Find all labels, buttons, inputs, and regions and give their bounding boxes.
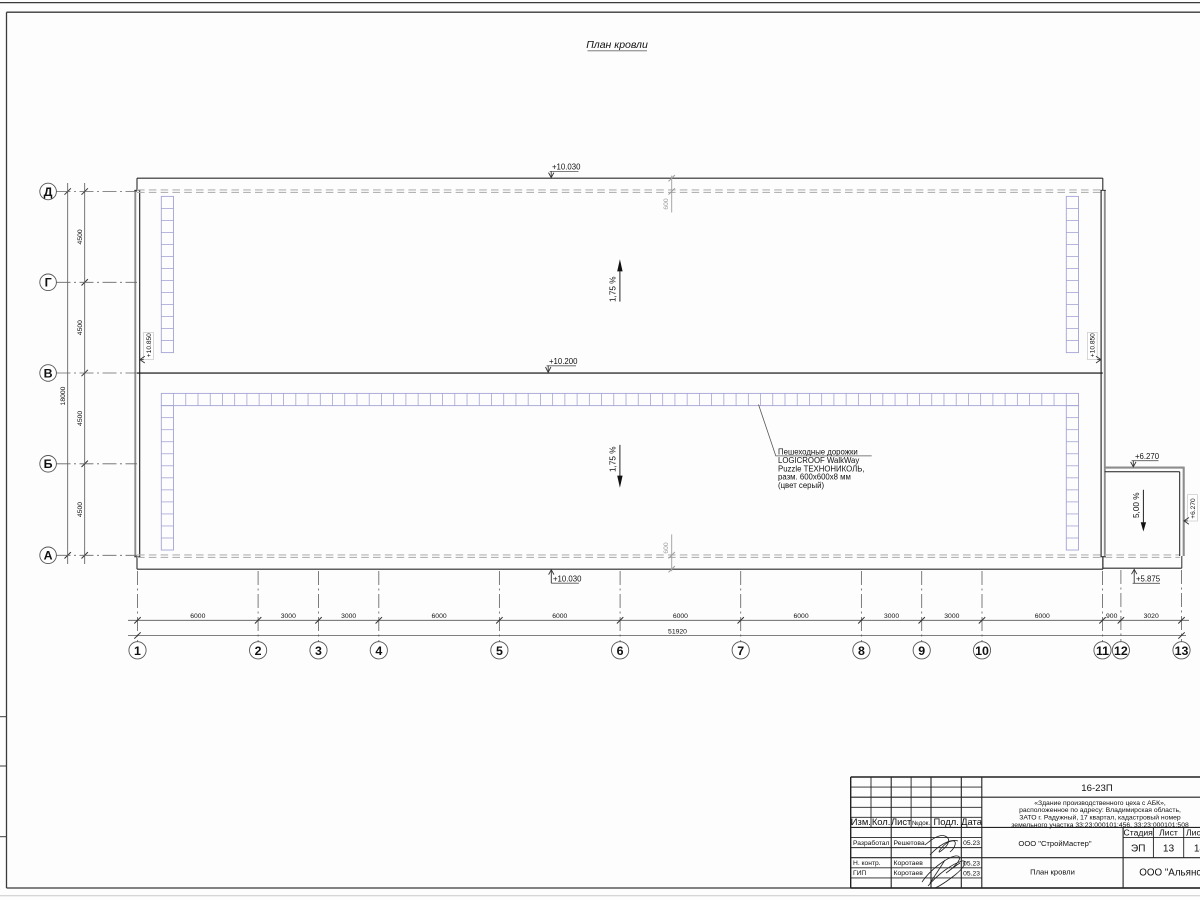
- svg-text:12: 12: [1114, 644, 1128, 658]
- svg-text:ЭП: ЭП: [1131, 844, 1146, 855]
- svg-text:ООО "СтройМастер": ООО "СтройМастер": [1018, 839, 1091, 848]
- svg-text:6000: 6000: [552, 613, 567, 620]
- svg-text:+10.850: +10.850: [146, 333, 153, 357]
- svg-text:+6.270: +6.270: [1190, 498, 1197, 519]
- svg-text:Изм.: Изм.: [851, 816, 871, 827]
- svg-text:«Здание производственного цеха: «Здание производственного цеха с АБК»,: [1034, 800, 1166, 807]
- svg-text:Листов: Листов: [1186, 827, 1200, 837]
- svg-text:Н. контр.: Н. контр.: [853, 860, 881, 867]
- svg-text:13: 13: [1163, 844, 1175, 855]
- svg-text:Г: Г: [45, 276, 52, 290]
- svg-text:3000: 3000: [944, 613, 959, 620]
- svg-text:1,75 %: 1,75 %: [608, 277, 617, 303]
- svg-text:4: 4: [375, 644, 382, 658]
- svg-text:№док.: №док.: [912, 820, 930, 827]
- svg-text:2: 2: [255, 644, 262, 658]
- svg-text:План кровли: План кровли: [586, 39, 648, 51]
- svg-text:9: 9: [918, 644, 925, 658]
- svg-text:5,00 %: 5,00 %: [1132, 493, 1141, 519]
- svg-text:Решетова: Решетова: [894, 840, 925, 847]
- svg-text:16-23П: 16-23П: [1081, 783, 1113, 794]
- svg-text:13: 13: [1175, 644, 1189, 658]
- svg-text:900: 900: [1106, 613, 1118, 620]
- svg-text:Коротаев: Коротаев: [894, 870, 924, 877]
- svg-text:3: 3: [315, 644, 322, 658]
- svg-text:6: 6: [617, 644, 624, 658]
- svg-text:ЗАТО г. Радужный, 17 квартал,: ЗАТО г. Радужный, 17 квартал, кадастровы…: [1019, 814, 1181, 822]
- svg-text:1: 1: [134, 644, 141, 658]
- svg-text:10: 10: [975, 644, 989, 658]
- svg-text:План кровли: План кровли: [1030, 867, 1075, 876]
- svg-text:Д: Д: [44, 185, 53, 199]
- svg-text:Лист: Лист: [891, 816, 912, 827]
- svg-text:ГИП: ГИП: [853, 870, 866, 877]
- svg-text:4500: 4500: [77, 320, 84, 335]
- svg-text:600: 600: [663, 198, 670, 210]
- svg-text:3000: 3000: [884, 613, 899, 620]
- svg-text:расположенное по адресу: Влади: расположенное по адресу: Владимирская об…: [1019, 806, 1181, 814]
- svg-text:14: 14: [1194, 844, 1200, 855]
- svg-text:+6.270: +6.270: [1135, 452, 1160, 461]
- svg-text:4500: 4500: [77, 502, 84, 517]
- svg-text:ООО "Альянс": ООО "Альянс": [1139, 867, 1200, 878]
- svg-text:05.23: 05.23: [963, 860, 980, 867]
- svg-text:6000: 6000: [673, 613, 688, 620]
- svg-text:А: А: [44, 549, 53, 563]
- svg-text:Разработал: Разработал: [853, 839, 889, 847]
- svg-text:05.23: 05.23: [963, 870, 980, 877]
- svg-text:+5.875: +5.875: [1136, 575, 1161, 584]
- svg-text:3000: 3000: [341, 613, 356, 620]
- svg-text:+10.030: +10.030: [552, 163, 581, 172]
- svg-text:Коротаев: Коротаев: [894, 860, 924, 867]
- svg-text:6000: 6000: [190, 613, 205, 620]
- svg-text:6000: 6000: [1035, 613, 1050, 620]
- svg-text:Подл.: Подл.: [934, 816, 959, 827]
- svg-text:Дата: Дата: [961, 816, 983, 827]
- svg-text:05.23: 05.23: [963, 840, 980, 847]
- svg-text:+10.030: +10.030: [553, 574, 582, 583]
- svg-text:6000: 6000: [793, 613, 808, 620]
- svg-text:4500: 4500: [77, 411, 84, 426]
- svg-text:51920: 51920: [668, 628, 687, 635]
- svg-text:11: 11: [1096, 644, 1109, 658]
- svg-text:(цвет серый): (цвет серый): [778, 481, 824, 490]
- svg-text:7: 7: [737, 644, 744, 658]
- svg-text:8: 8: [858, 644, 865, 658]
- svg-text:600: 600: [663, 542, 670, 554]
- svg-text:1,75 %: 1,75 %: [608, 447, 617, 473]
- svg-text:3000: 3000: [281, 613, 296, 620]
- svg-text:3020: 3020: [1144, 613, 1159, 620]
- svg-text:Лист: Лист: [1159, 827, 1178, 837]
- svg-text:Стадия: Стадия: [1124, 827, 1154, 837]
- svg-text:В: В: [44, 366, 53, 380]
- svg-text:4500: 4500: [77, 229, 84, 244]
- svg-text:Кол.: Кол.: [872, 816, 891, 827]
- svg-text:Б: Б: [44, 457, 53, 471]
- svg-text:18000: 18000: [60, 386, 67, 405]
- svg-text:+10.200: +10.200: [549, 357, 578, 366]
- svg-text:6000: 6000: [432, 613, 447, 620]
- svg-text:5: 5: [496, 644, 503, 658]
- svg-text:+10.850: +10.850: [1090, 333, 1097, 357]
